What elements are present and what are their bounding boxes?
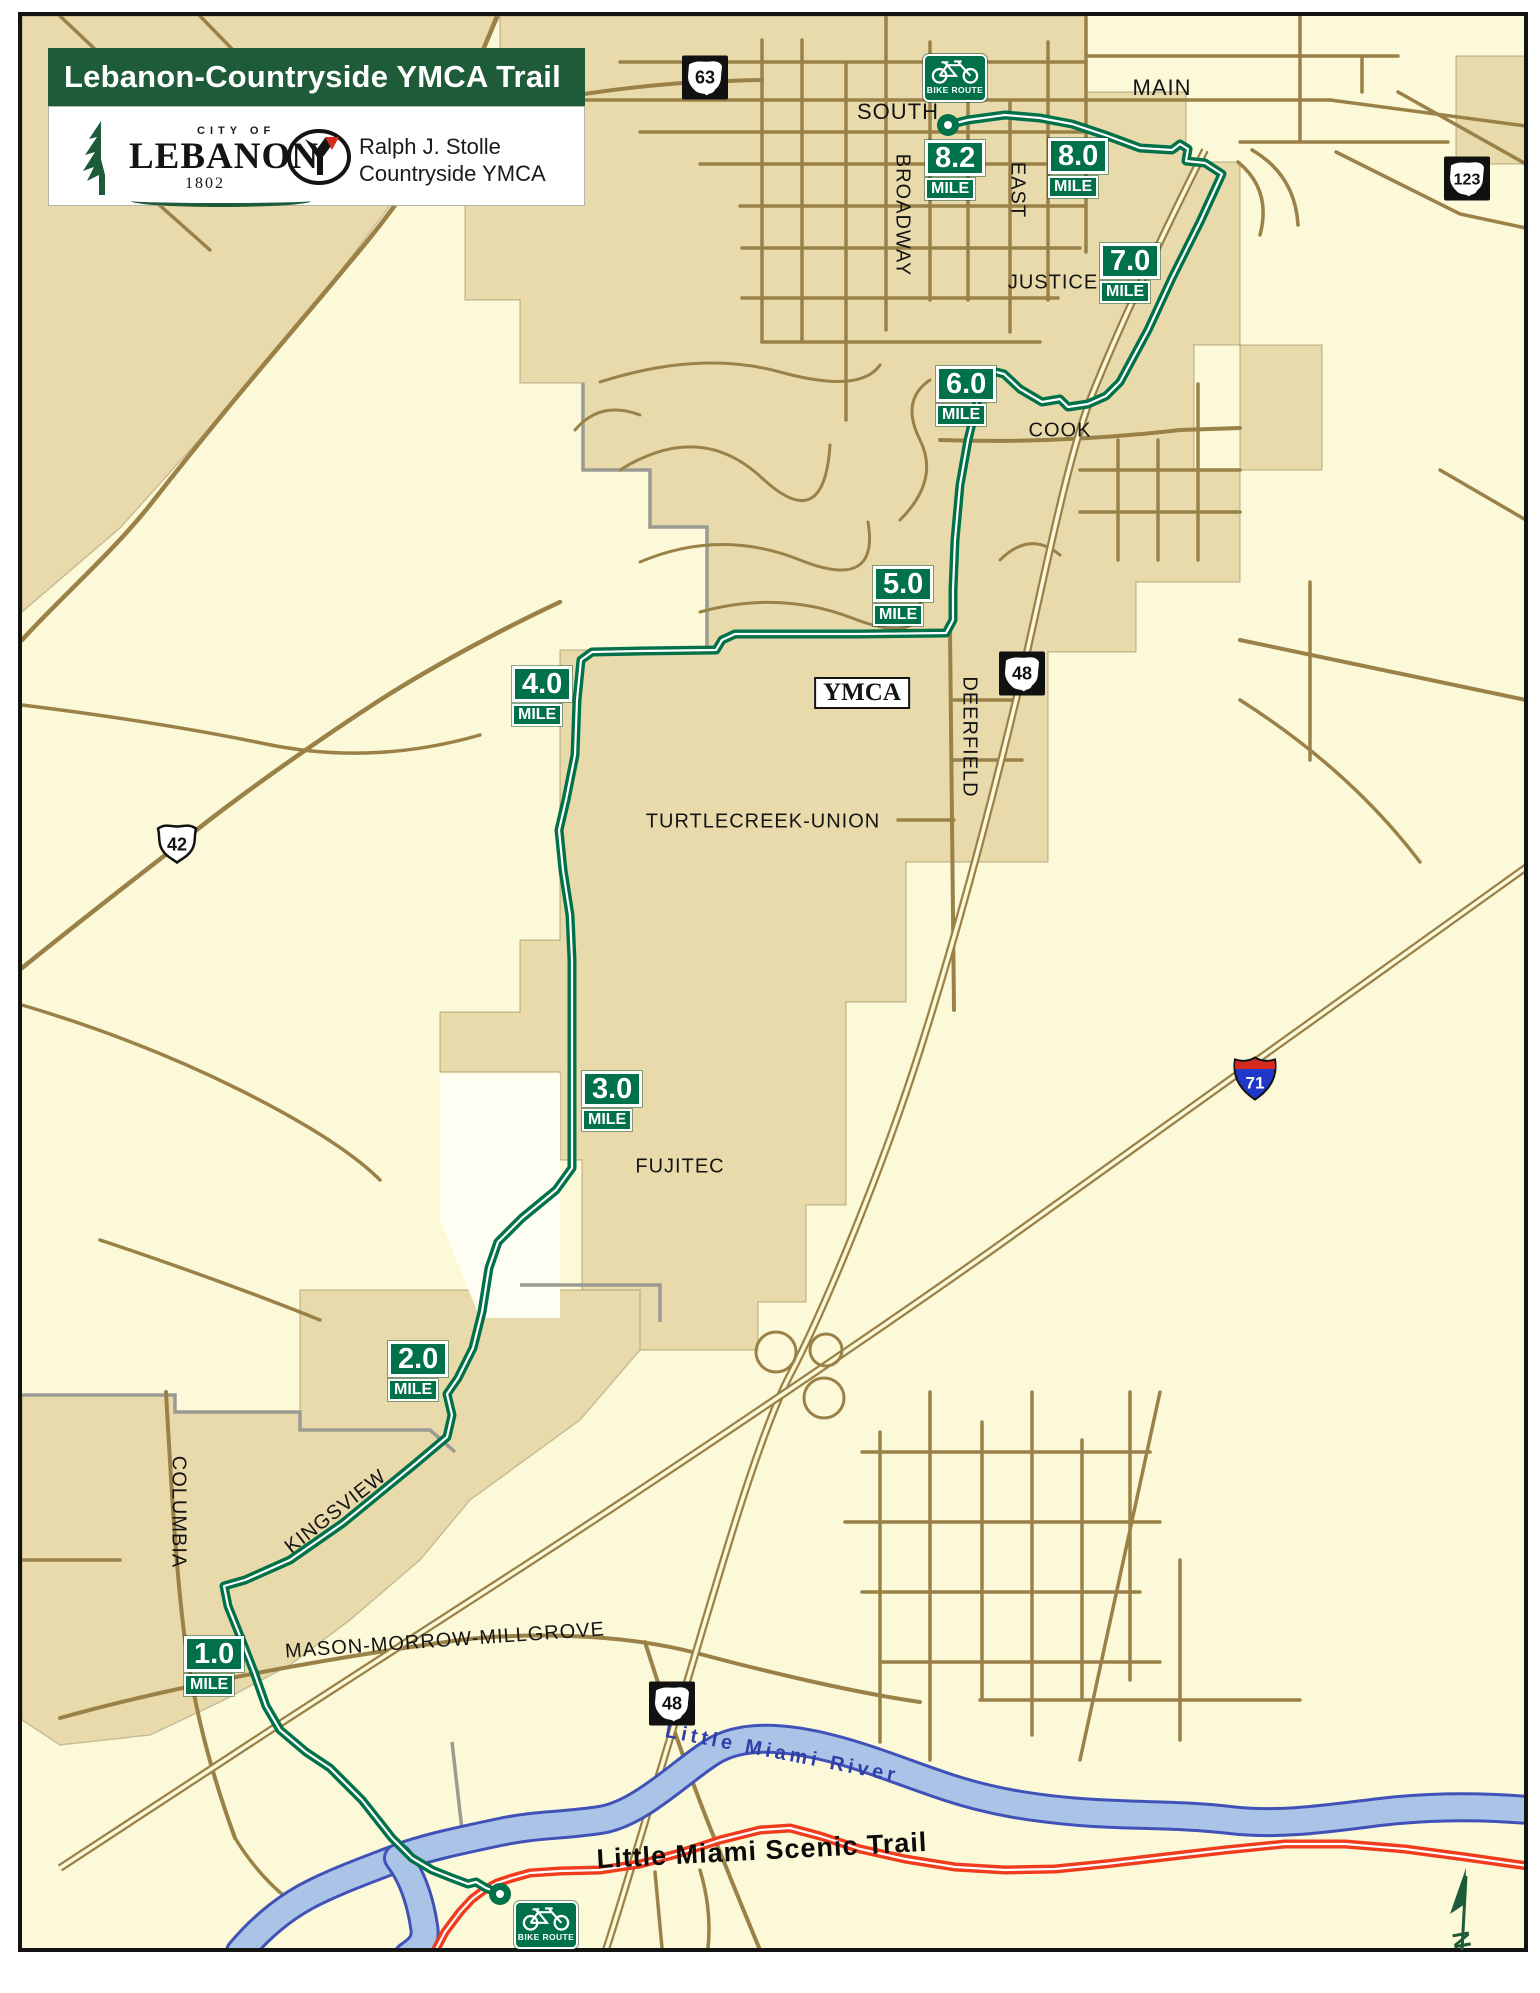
mile-marker-unit: MILE (936, 404, 986, 426)
trail-map-page: Lebanon-Countryside YMCA Trail CITY OF L… (0, 0, 1540, 1993)
ymca-org-line2: Countryside YMCA (359, 160, 546, 187)
mile-marker-value: 3.0 (582, 1071, 642, 1107)
mile-marker-value: 5.0 (873, 566, 933, 602)
logo-panel: CITY OF LEBANON 1802 Ralph J. Stolle Cou… (48, 106, 585, 206)
mile-marker-unit: MILE (1100, 281, 1150, 303)
mile-marker-7-0: 7.0 MILE (1100, 243, 1160, 303)
street-label-turtlecreek-union: TURTLECREEK-UNION (646, 811, 880, 834)
trail-endpoint-south (489, 1883, 511, 1905)
bike-route-label: BIKE ROUTE (927, 85, 983, 95)
mile-marker-value: 8.2 (925, 140, 985, 176)
route-shield-oh-48-north: 48 (999, 652, 1045, 701)
mile-marker-5-0: 5.0 MILE (873, 566, 933, 626)
ymca-place-label: YMCA (814, 677, 910, 709)
street-label-cook: COOK (1029, 420, 1092, 443)
route-shield-oh-63: 63 (682, 56, 728, 105)
mile-marker-unit: MILE (184, 1674, 234, 1696)
mile-marker-2-0: 2.0 MILE (388, 1341, 448, 1401)
bicycle-icon (521, 1905, 571, 1931)
mile-marker-6-0: 6.0 MILE (936, 366, 996, 426)
ymca-org-name: Ralph J. Stolle Countryside YMCA (359, 133, 546, 187)
bike-route-label: BIKE ROUTE (518, 1932, 574, 1942)
route-shield-us-42: 42 (153, 822, 201, 871)
street-label-east: EAST (1006, 162, 1029, 218)
bicycle-icon (930, 58, 980, 84)
mile-marker-unit: MILE (873, 604, 923, 626)
shield-number: 71 (1246, 1074, 1265, 1093)
mile-marker-3-0: 3.0 MILE (582, 1071, 642, 1131)
route-shield-oh-48-south: 48 (649, 1682, 695, 1731)
mile-marker-unit: MILE (582, 1109, 632, 1131)
north-letter: N (1446, 1929, 1476, 1951)
street-label-fujitec: FUJITEC (635, 1156, 724, 1179)
route-shield-i-71: 71 (1230, 1056, 1280, 1107)
ymca-logo-icon (285, 123, 353, 191)
street-label-deerfield: DEERFIELD (958, 676, 981, 797)
mile-marker-4-0: 4.0 MILE (512, 666, 572, 726)
shield-number: 48 (662, 1694, 682, 1714)
lebanon-swoosh (131, 195, 311, 207)
north-arrow: N (1432, 1862, 1492, 1962)
mile-marker-8-0: 8.0 MILE (1048, 138, 1108, 198)
mile-marker-unit: MILE (925, 178, 975, 200)
bike-route-sign-top: BIKE ROUTE (923, 54, 987, 102)
mile-marker-value: 6.0 (936, 366, 996, 402)
bike-route-sign-bottom: BIKE ROUTE (514, 1901, 578, 1949)
title-banner: Lebanon-Countryside YMCA Trail (48, 48, 585, 106)
ymca-org-line1: Ralph J. Stolle (359, 133, 546, 160)
lebanon-tree-icon (75, 119, 127, 199)
mile-marker-value: 1.0 (184, 1636, 244, 1672)
lebanon-year-label: 1802 (185, 175, 225, 193)
street-label-south: SOUTH (857, 99, 939, 125)
mile-marker-1-0: 1.0 MILE (184, 1636, 244, 1696)
route-shield-oh-123: 123 (1444, 157, 1490, 206)
street-label-main: MAIN (1133, 75, 1192, 101)
map-layers (20, 14, 1528, 1957)
shield-number: 123 (1454, 172, 1481, 189)
mile-marker-value: 7.0 (1100, 243, 1160, 279)
page-title: Lebanon-Countryside YMCA Trail (64, 59, 561, 95)
shield-number: 48 (1012, 664, 1032, 684)
mile-marker-value: 8.0 (1048, 138, 1108, 174)
mile-marker-value: 2.0 (388, 1341, 448, 1377)
mile-marker-8-2: 8.2 MILE (925, 140, 985, 200)
shield-number: 42 (167, 835, 187, 855)
mile-marker-unit: MILE (1048, 176, 1098, 198)
street-label-columbia: COLUMBIA (167, 1456, 190, 1568)
street-label-justice: JUSTICE (1008, 272, 1098, 295)
mile-marker-value: 4.0 (512, 666, 572, 702)
trail-endpoint-north (937, 114, 959, 136)
mile-marker-unit: MILE (512, 704, 562, 726)
street-label-broadway: BROADWAY (891, 154, 914, 276)
mile-marker-unit: MILE (388, 1379, 438, 1401)
shield-number: 63 (695, 68, 715, 88)
